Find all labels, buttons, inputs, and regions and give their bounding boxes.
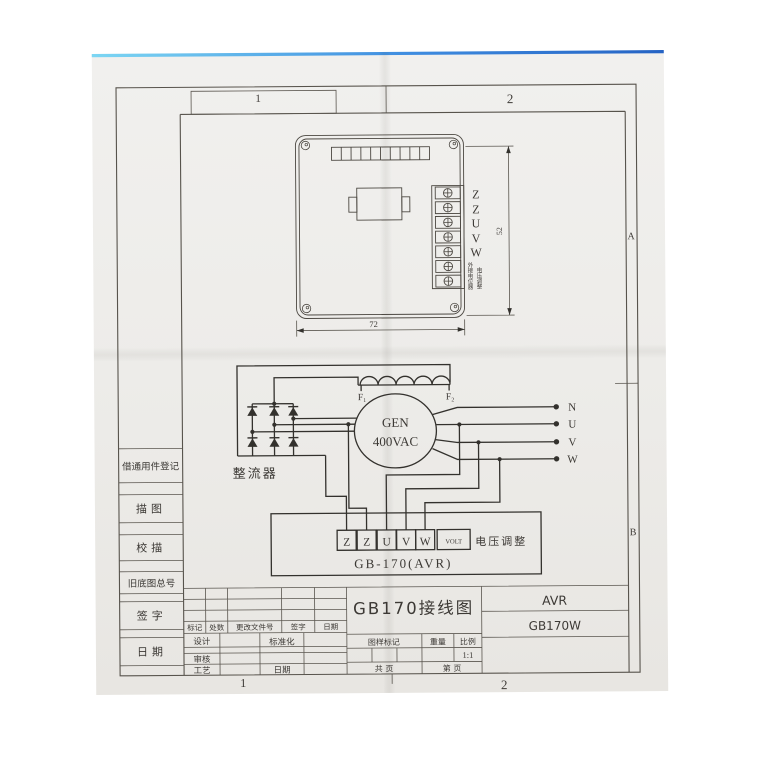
dim-width-label: 72 xyxy=(369,319,378,329)
left-strip-label: 借通用件登记 xyxy=(122,460,180,472)
product-name: AVR xyxy=(542,593,567,608)
device-terminal-label: U xyxy=(472,216,481,230)
scale-value: 1:1 xyxy=(463,650,474,660)
output-label-w: W xyxy=(567,454,578,466)
output-terminal-dot xyxy=(554,404,559,409)
drawing-mark-label: 图样标记 xyxy=(368,637,400,647)
zone-label-top-1: 1 xyxy=(255,93,261,105)
output-label-n: N xyxy=(568,402,576,414)
device-terminal-label: W xyxy=(470,245,482,259)
avr-terminal-label: U xyxy=(382,536,391,548)
weight-label: 重量 xyxy=(430,637,446,647)
device-terminal-label: Z xyxy=(472,187,479,201)
revision-header: 更改文件号 xyxy=(236,622,274,632)
avr-terminal-label: W xyxy=(420,536,431,548)
left-strip-label: 旧底图总号 xyxy=(128,577,176,589)
scale-label: 比例 xyxy=(460,636,476,646)
coil-label-f2: F₂ xyxy=(446,392,455,402)
process-label: 工艺 xyxy=(194,666,211,676)
device-terminal-label: Z xyxy=(472,202,479,216)
review-label: 审核 xyxy=(193,654,211,665)
left-strip-label: 描图 xyxy=(136,501,166,515)
gen-voltage-label: 400VAC xyxy=(373,434,418,449)
sheet-no-label: 第 页 xyxy=(443,663,462,673)
sheet-total-label: 共 页 xyxy=(375,664,394,673)
revision-header: 日期 xyxy=(323,622,338,631)
output-label-v: V xyxy=(568,437,576,449)
left-strip-label: 校描 xyxy=(136,540,166,554)
avr-terminal-label: V xyxy=(402,536,411,548)
zone-label-a: A xyxy=(627,231,635,242)
design-label: 设计 xyxy=(193,636,211,647)
external-pot-label: 外接电位器 xyxy=(466,262,472,294)
device-terminal-label: V xyxy=(472,231,481,245)
rectifier-label: 整流器 xyxy=(233,467,278,482)
output-terminal-dot xyxy=(554,456,559,461)
zone-label-bottom-1: 1 xyxy=(240,676,246,690)
revision-header: 处数 xyxy=(209,622,225,632)
output-label-u: U xyxy=(568,419,576,431)
avr-name-label: GB-170(AVR) xyxy=(354,555,452,571)
gen-label: GEN xyxy=(382,415,409,430)
drawing-canvas: 1 2 1 2 A B xyxy=(0,0,760,760)
drawing-title: GB170接线图 xyxy=(353,598,474,618)
avr-terminal-label-volt: VOLT xyxy=(445,538,462,545)
zone-label-b: B xyxy=(630,527,637,538)
output-terminal-dot xyxy=(554,439,559,444)
dim-height-label: 52 xyxy=(495,227,504,235)
zone-label-top-2: 2 xyxy=(507,91,514,106)
avr-terminal-label: Z xyxy=(343,537,350,549)
revision-header: 标记 xyxy=(187,622,203,632)
output-terminal-dot xyxy=(554,421,559,426)
model-number: GB170W xyxy=(529,619,582,633)
paper-sheet: 1 2 1 2 A B xyxy=(92,50,668,695)
left-strip-label: 日期 xyxy=(137,645,167,658)
coil-label-f1: F₁ xyxy=(358,393,367,403)
standardization-label: 标准化 xyxy=(269,637,295,648)
scanned-wiring-drawing: { "frame": { "zone_top_1": "1", "zone_to… xyxy=(0,0,760,760)
volt-adjust-terminal-label: 电压调整 xyxy=(475,267,481,295)
left-strip-label: 签字 xyxy=(137,608,167,622)
date-label: 日期 xyxy=(274,666,291,676)
zone-label-bottom-2: 2 xyxy=(501,677,508,692)
volt-adjust-label: 电压调整 xyxy=(475,534,527,548)
revision-header: 签字 xyxy=(291,622,306,632)
avr-terminal-label: Z xyxy=(363,537,370,549)
